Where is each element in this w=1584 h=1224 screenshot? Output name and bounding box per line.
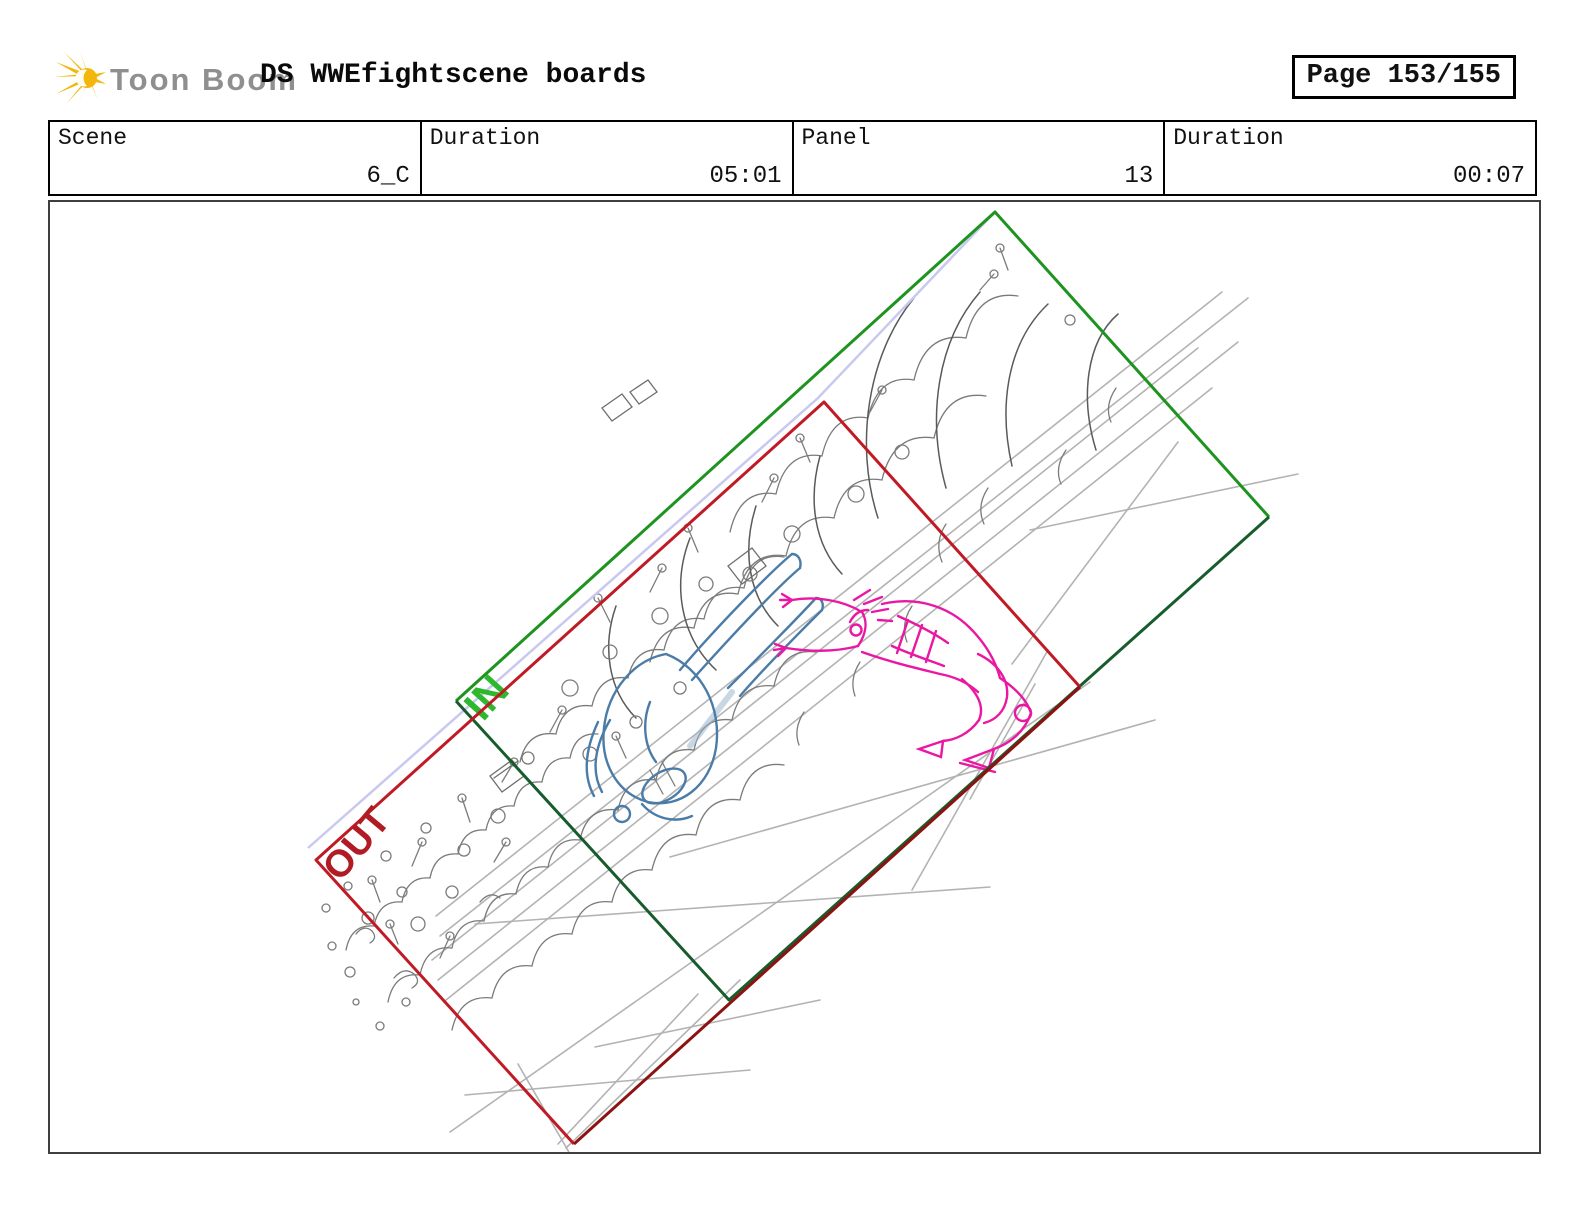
storyboard-panel: IN OUT (48, 200, 1541, 1154)
panel-value: 13 (1124, 163, 1153, 190)
page-header: Toon Boom DS WWEfightscene boards Page 1… (48, 46, 1536, 110)
scene-duration-cell: Duration 05:01 (420, 122, 792, 194)
camera-frame-in: IN (455, 212, 1269, 1000)
crowd-signs (490, 380, 766, 792)
panel-label: Panel (802, 125, 871, 151)
storyboard-export-page: { "header": { "brand": "Toon Boom", "tit… (0, 0, 1584, 1224)
panel-drawing: IN OUT (50, 202, 1539, 1152)
scene-duration-value: 05:01 (709, 163, 781, 190)
page-number-badge: Page 153/155 (1292, 55, 1516, 99)
scene-value: 6_C (367, 163, 410, 190)
scene-cell: Scene 6_C (50, 122, 420, 194)
frame-out-label: OUT (315, 800, 399, 888)
scene-info-table: Scene 6_C Duration 05:01 Panel 13 Durati… (48, 120, 1537, 196)
figure-blue-sketch (587, 554, 823, 822)
scene-label: Scene (58, 125, 127, 151)
frame-in-label: IN (455, 666, 518, 729)
toonboom-logo-icon (54, 50, 108, 106)
panel-duration-value: 00:07 (1453, 163, 1525, 190)
scene-duration-label: Duration (430, 125, 540, 151)
panel-duration-cell: Duration 00:07 (1163, 122, 1535, 194)
document-title: DS WWEfightscene boards (260, 60, 646, 91)
panel-cell: Panel 13 (792, 122, 1164, 194)
perspective-lines (432, 292, 1298, 1152)
panel-duration-label: Duration (1173, 125, 1283, 151)
